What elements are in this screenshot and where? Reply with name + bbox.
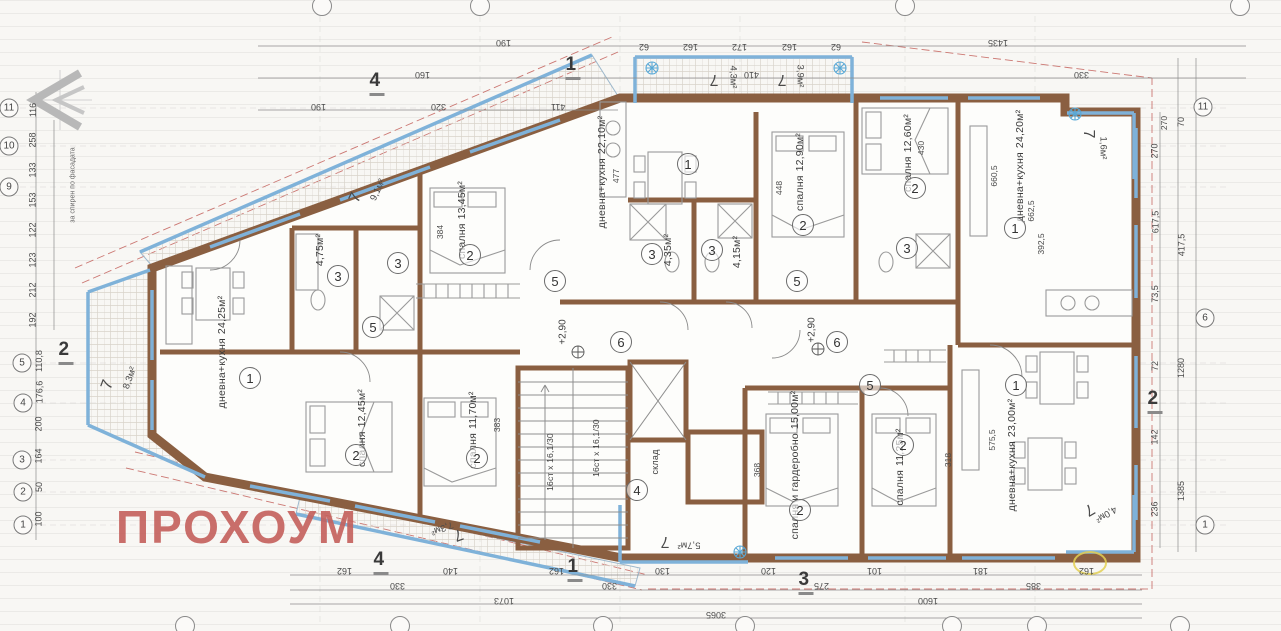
balcony-area-label: 5,7м² [678,540,701,551]
grid-bubble: 11 [1194,98,1213,117]
dim-value: 162 [337,566,352,576]
dim-row-bottom-1: 162140162130120101181162 [292,566,1140,576]
balcony-number: 7 [661,532,670,550]
room-number: 5 [544,270,566,292]
dim-value: 120 [761,566,776,576]
dim-value: 1435 [988,38,1008,48]
room-label-living-4: дневна+кухня23,00м² [1006,399,1018,512]
dim-value: 140 [443,566,458,576]
stair-flight-label: 16ст x 16,1/30 [545,433,555,491]
grid-bubble: 5 [13,354,32,373]
inner-dim: 477 [611,169,621,183]
inner-dim: 270 [1159,116,1169,130]
dim-value: 330 [1074,70,1089,80]
dim-value: 1385 [1176,480,1186,500]
dim-value: 385 [1026,581,1041,591]
room-label-bedroom-2: спалня12,90м² [794,133,806,211]
room-number: 6 [826,331,848,353]
dim-value: 176,6 [34,381,44,404]
section-mark: 2 [59,339,74,365]
dim-value: 62 [831,42,841,52]
inner-dim: 660,5 [989,165,999,186]
inner-dim: 430 [916,141,926,155]
room-number: 3 [896,237,918,259]
level-mark: +2,90 [807,317,818,342]
dim-value: 320 [431,102,446,112]
room-number: 1 [1005,374,1027,396]
room-label-living-3: дневна+кухня24,20м² [1014,110,1026,223]
dim-value: 133 [28,162,38,177]
grid-bubble: 11 [0,99,19,118]
grid-bubble: 3 [13,451,32,470]
dim-value: 1073 [494,596,514,606]
room-number: 4 [626,479,648,501]
room-number: 2 [789,499,811,521]
dim-value: 330 [602,581,617,591]
grid-bubble: 6 [1196,309,1215,328]
dim-row-bottom-3: 10731600 [292,596,1140,606]
dim-value: 142 [1150,430,1160,445]
dim-value: 3065 [706,610,726,620]
room-number: 1 [1004,217,1026,239]
dim-value: 270 [1150,143,1160,158]
level-mark: +2,90 [558,319,569,344]
dim-row-bottom-2: 330330275385 [292,581,1140,591]
grid-bubble: 10 [0,137,19,156]
room-number: 3 [641,243,663,265]
room-number: 5 [786,270,808,292]
dim-value: 410 [744,70,759,80]
inner-dim: 368 [752,463,762,477]
dim-value: 123 [28,252,38,267]
dim-value: 417,5 [1176,233,1186,256]
dim-col-right-outer: 70417,512801385 [1172,60,1190,552]
dim-value: 181 [973,566,988,576]
dim-value: 162 [549,566,564,576]
watermark-logo: ПРОХОУМ [116,500,358,554]
dim-value: 164 [34,448,44,463]
room-number: 2 [792,214,814,236]
grid-bubble-cut [1170,616,1190,631]
room-number: 5 [362,316,384,338]
room-label-living-2: дневна+кухня22,10м² [596,116,608,229]
bath-area-label: 4,75м² [314,234,326,266]
room-number: 2 [892,434,914,456]
inner-dim: 318 [943,453,953,467]
inner-dim: 448 [774,181,784,195]
room-number: 2 [466,447,488,469]
dim-value: 330 [390,581,405,591]
facade-side-note: за спирен по фасадата [70,147,77,222]
dim-value: 1280 [1176,357,1186,377]
grid-bubble-cut [175,616,195,631]
inner-dim: 383 [492,418,502,432]
room-number: 3 [387,252,409,274]
room-number: 2 [904,177,926,199]
dim-row-bottom-4: 3065 [292,610,1140,620]
dim-value: 101 [867,566,882,576]
dim-value: 617,5 [1150,211,1160,234]
room-number: 3 [327,265,349,287]
grid-bubble: 1 [1196,516,1215,535]
dim-col-left-upper: 116258133153122123212192 [24,95,42,335]
room-number: 5 [859,374,881,396]
bath-area-label: 4,35м² [662,234,674,266]
dim-value: 70 [1176,116,1186,126]
grid-bubble: 9 [0,178,19,197]
room-number: 6 [610,331,632,353]
room-number: 1 [677,153,699,175]
dim-value: 275 [814,581,829,591]
dim-value: 72 [1150,361,1160,371]
dim-value: 190 [496,38,511,48]
inner-dim: 384 [435,225,445,239]
room-number: 3 [701,239,723,261]
dim-value: 190 [311,102,326,112]
dim-value: 100 [34,512,44,527]
storage-label: склад [650,449,660,474]
dim-value: 162 [683,42,698,52]
dim-value: 258 [28,132,38,147]
dim-value: 162 [1079,566,1094,576]
dim-value: 73,5 [1150,285,1160,303]
dim-row-top-4: 6216217216262 [622,42,858,52]
inner-dim: 662,5 [1026,200,1036,221]
dim-value: 162 [782,42,797,52]
dim-value: 212 [28,282,38,297]
dim-value: 160 [415,70,430,80]
inner-dim: 575,5 [987,429,997,450]
dim-value: 116 [28,103,38,117]
dim-value: 153 [28,192,38,207]
stair-flight-label: 16ст x 16,1/30 [591,419,601,477]
balcony-area-label: 1,6м² [1098,137,1109,160]
room-label-living-1: дневна+кухня24,25м² [216,296,228,409]
dim-col-left-lower: 110,8176,620016450100 [30,345,48,535]
dim-value: 172 [732,42,747,52]
dim-value: 411 [551,102,565,112]
dim-value: 192 [28,312,38,327]
dim-row-top-2: 160410330 [258,70,1246,80]
dim-value: 130 [655,566,670,576]
bath-area-label: 4,15м² [731,236,743,268]
dim-value: 1600 [918,596,938,606]
dim-value: 50 [34,482,44,492]
dim-col-right-inner: 270617,573,572142236 [1146,115,1164,545]
dim-value: 110,8 [34,350,44,372]
room-number: 2 [345,444,367,466]
room-number: 2 [459,244,481,266]
floor-plan-page: дневна+кухня24,25м² 1 спалня13,45м² 2 дн… [0,0,1281,631]
dim-value: 236 [1150,502,1160,517]
dim-value: 200 [34,417,44,432]
dim-row-top-3: 190320411 [258,102,618,112]
inner-dim: 392,5 [1036,233,1046,254]
dim-value: 122 [28,222,38,237]
room-number: 1 [239,367,261,389]
balcony-number: 7 [1079,130,1097,139]
dim-value: 62 [639,42,649,52]
